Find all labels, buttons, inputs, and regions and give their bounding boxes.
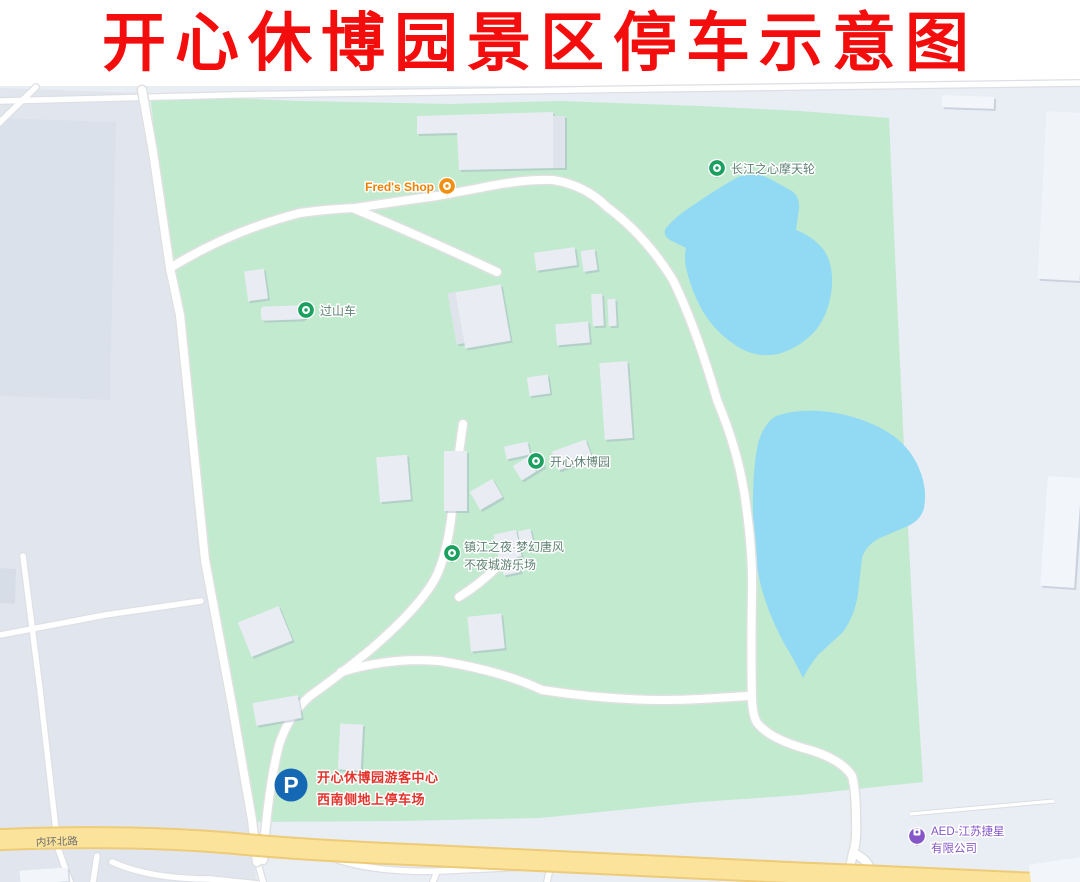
poi-label-aed-line1[interactable]: AED-江苏捷星 xyxy=(931,824,1004,838)
poi-label-ferris-wheel[interactable]: 长江之心摩天轮 xyxy=(731,161,815,176)
street-label: 内环北路 xyxy=(36,835,79,849)
parking-label-line1[interactable]: 开心休博园游客中心 xyxy=(317,770,439,785)
poi-label-aed-line2[interactable]: 有限公司 xyxy=(931,841,977,855)
poi-label-night-park-line1[interactable]: 镇江之夜·梦幻唐风 xyxy=(464,539,564,554)
page-title: 开心休博园景区停车示意图 xyxy=(0,4,1080,84)
map-canvas[interactable]: 内环北路 长江之心摩天轮 过山车 Fred's Shop 开心休博园 镇江之夜·… xyxy=(0,0,1080,882)
poi-label-night-park-line2[interactable]: 不夜城游乐场 xyxy=(464,557,536,572)
parking-letter: P xyxy=(283,772,298,798)
west-subparcel-small xyxy=(0,568,16,604)
parking-marker[interactable]: P xyxy=(275,769,308,802)
parking-label-line2[interactable]: 西南侧地上停车场 xyxy=(317,792,425,807)
west-subparcel xyxy=(0,118,116,400)
poi-label-roller-coaster[interactable]: 过山车 xyxy=(320,303,356,318)
page: 开心休博园景区停车示意图 xyxy=(0,0,1080,882)
poi-label-park-center[interactable]: 开心休博园 xyxy=(550,454,610,469)
poi-label-freds-shop[interactable]: Fred's Shop xyxy=(365,180,434,194)
